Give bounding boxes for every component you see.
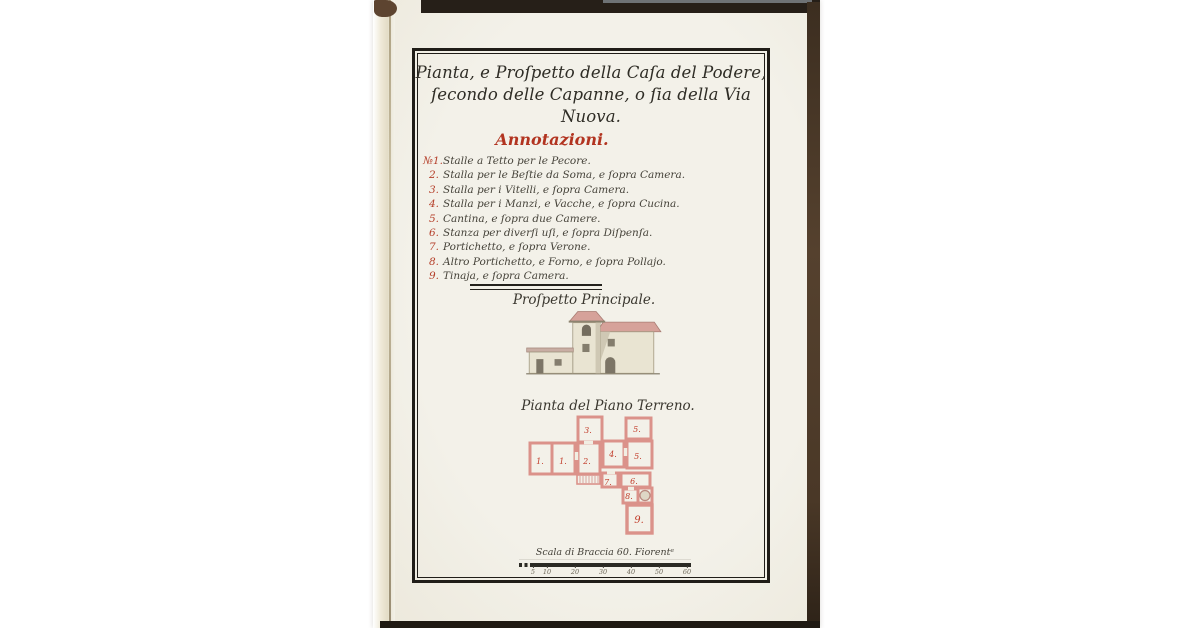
backdrop-sliver <box>603 0 812 3</box>
plate-border: Pianta, e Proſpetto della Caſa del Poder… <box>412 48 770 583</box>
belfry-window <box>582 325 591 336</box>
room-number: 6. <box>630 477 638 486</box>
plate-title-line2: ſecondo delle Capanne, o ſia della Via N… <box>415 84 767 128</box>
double-rule-divider <box>470 284 602 290</box>
room-number: 1. <box>559 457 567 466</box>
wing-wall <box>529 352 573 373</box>
item-number: 8. <box>423 256 443 270</box>
book-cover-right-edge <box>807 2 820 625</box>
list-item: 3. Stalla per i Vitelli, e ſopra Camera. <box>423 184 723 198</box>
floor-plan-drawing: 1. 1. 2. 3. 4. 5. 5. 6. 7. 8. 9. <box>527 414 669 542</box>
book-spine <box>373 0 395 628</box>
scale-tick: 5 <box>531 568 535 576</box>
room-number: 3. <box>584 426 592 435</box>
scale-label: Scala di Braccia 60. Fiorentᵉ <box>519 547 691 560</box>
scale-bar-subdivisions <box>519 563 533 567</box>
list-item: №1. Stalle a Tetto per le Pecore. <box>423 155 723 169</box>
item-text: Stanza per diverſi uſi, e ſopra Diſpenſa… <box>443 227 652 241</box>
room-number: 5. <box>634 452 642 461</box>
room-number: 4. <box>608 450 617 459</box>
scale-tick: 50 <box>655 568 663 576</box>
main-roof <box>597 322 661 332</box>
elevation-label: Proſpetto Principale. <box>415 292 767 308</box>
wing-window <box>555 359 562 366</box>
item-number: №1. <box>423 155 443 169</box>
list-item: 6. Stanza per diverſi uſi, e ſopra Diſpe… <box>423 227 723 241</box>
room-number: 2. <box>582 457 591 466</box>
room-number: 9. <box>634 515 644 526</box>
tower-shadow <box>596 323 601 374</box>
item-text: Stalla per le Beſtie da Soma, e ſopra Ca… <box>443 169 685 183</box>
scale-tick: 20 <box>571 568 579 576</box>
list-item: 8. Altro Portichetto, e Forno, e ſopra P… <box>423 256 723 270</box>
scale-tick: 60 <box>683 568 691 576</box>
oven-circle <box>640 491 650 501</box>
item-text: Cantina, e ſopra due Camere. <box>443 213 601 227</box>
item-text: Portichetto, e ſopra Verone. <box>443 241 590 255</box>
annotations-heading: Annotazioni. <box>467 130 637 149</box>
item-text: Stalla per i Vitelli, e ſopra Camera. <box>443 184 629 198</box>
elevation-drawing <box>511 307 671 393</box>
room-number: 7. <box>604 478 612 487</box>
room-number: 8. <box>625 492 633 501</box>
annotations-list: №1. Stalle a Tetto per le Pecore. 2. Sta… <box>423 155 723 285</box>
item-number: 2. <box>423 169 443 183</box>
item-text: Tinaja, e ſopra Camera. <box>443 270 569 284</box>
wing-door <box>536 359 543 373</box>
scale-tick-labels: 5 10 20 30 40 50 60 <box>519 568 691 578</box>
item-text: Stalle a Tetto per le Pecore. <box>443 155 591 169</box>
scale-tick: 30 <box>599 568 607 576</box>
item-number: 3. <box>423 184 443 198</box>
item-number: 9. <box>423 270 443 284</box>
list-item: 4. Stalla per i Manzi, e Vacche, e ſopra… <box>423 198 723 212</box>
room-number: 5. <box>633 425 641 434</box>
spine-corner <box>374 0 397 17</box>
scale-tick: 10 <box>543 568 551 576</box>
list-item: 9. Tinaja, e ſopra Camera. <box>423 270 723 284</box>
item-text: Stalla per i Manzi, e Vacche, e ſopra Cu… <box>443 198 680 212</box>
list-item: 5. Cantina, e ſopra due Camere. <box>423 213 723 227</box>
page-fold-line <box>389 0 391 622</box>
scale-bar <box>519 563 691 567</box>
item-text: Altro Portichetto, e Forno, e ſopra Poll… <box>443 256 666 270</box>
main-door <box>605 357 615 373</box>
item-number: 4. <box>423 198 443 212</box>
item-number: 6. <box>423 227 443 241</box>
plan-label: Pianta del Piano Terreno. <box>415 398 767 414</box>
page-background: Pianta, e Proſpetto della Caſa del Poder… <box>0 0 1200 628</box>
list-item: 7. Portichetto, e ſopra Verone. <box>423 241 723 255</box>
tower-window <box>582 344 589 352</box>
wing-roof <box>527 348 574 352</box>
main-window <box>608 339 615 347</box>
book-photo: Pianta, e Proſpetto della Caſa del Poder… <box>373 0 820 628</box>
scale-tick: 40 <box>627 568 635 576</box>
stairs <box>577 475 600 484</box>
item-number: 5. <box>423 213 443 227</box>
scale-bar-group: Scala di Braccia 60. Fiorentᵉ 5 10 20 30… <box>519 547 691 578</box>
list-item: 2. Stalla per le Beſtie da Soma, e ſopra… <box>423 169 723 183</box>
plate-title: Pianta, e Proſpetto della Caſa del Poder… <box>415 62 767 128</box>
plate-title-line1: Pianta, e Proſpetto della Caſa del Poder… <box>415 62 767 84</box>
item-number: 7. <box>423 241 443 255</box>
tower-roof <box>570 312 604 322</box>
room-number: 1. <box>536 457 544 466</box>
book-cover-bottom-edge <box>380 621 820 628</box>
